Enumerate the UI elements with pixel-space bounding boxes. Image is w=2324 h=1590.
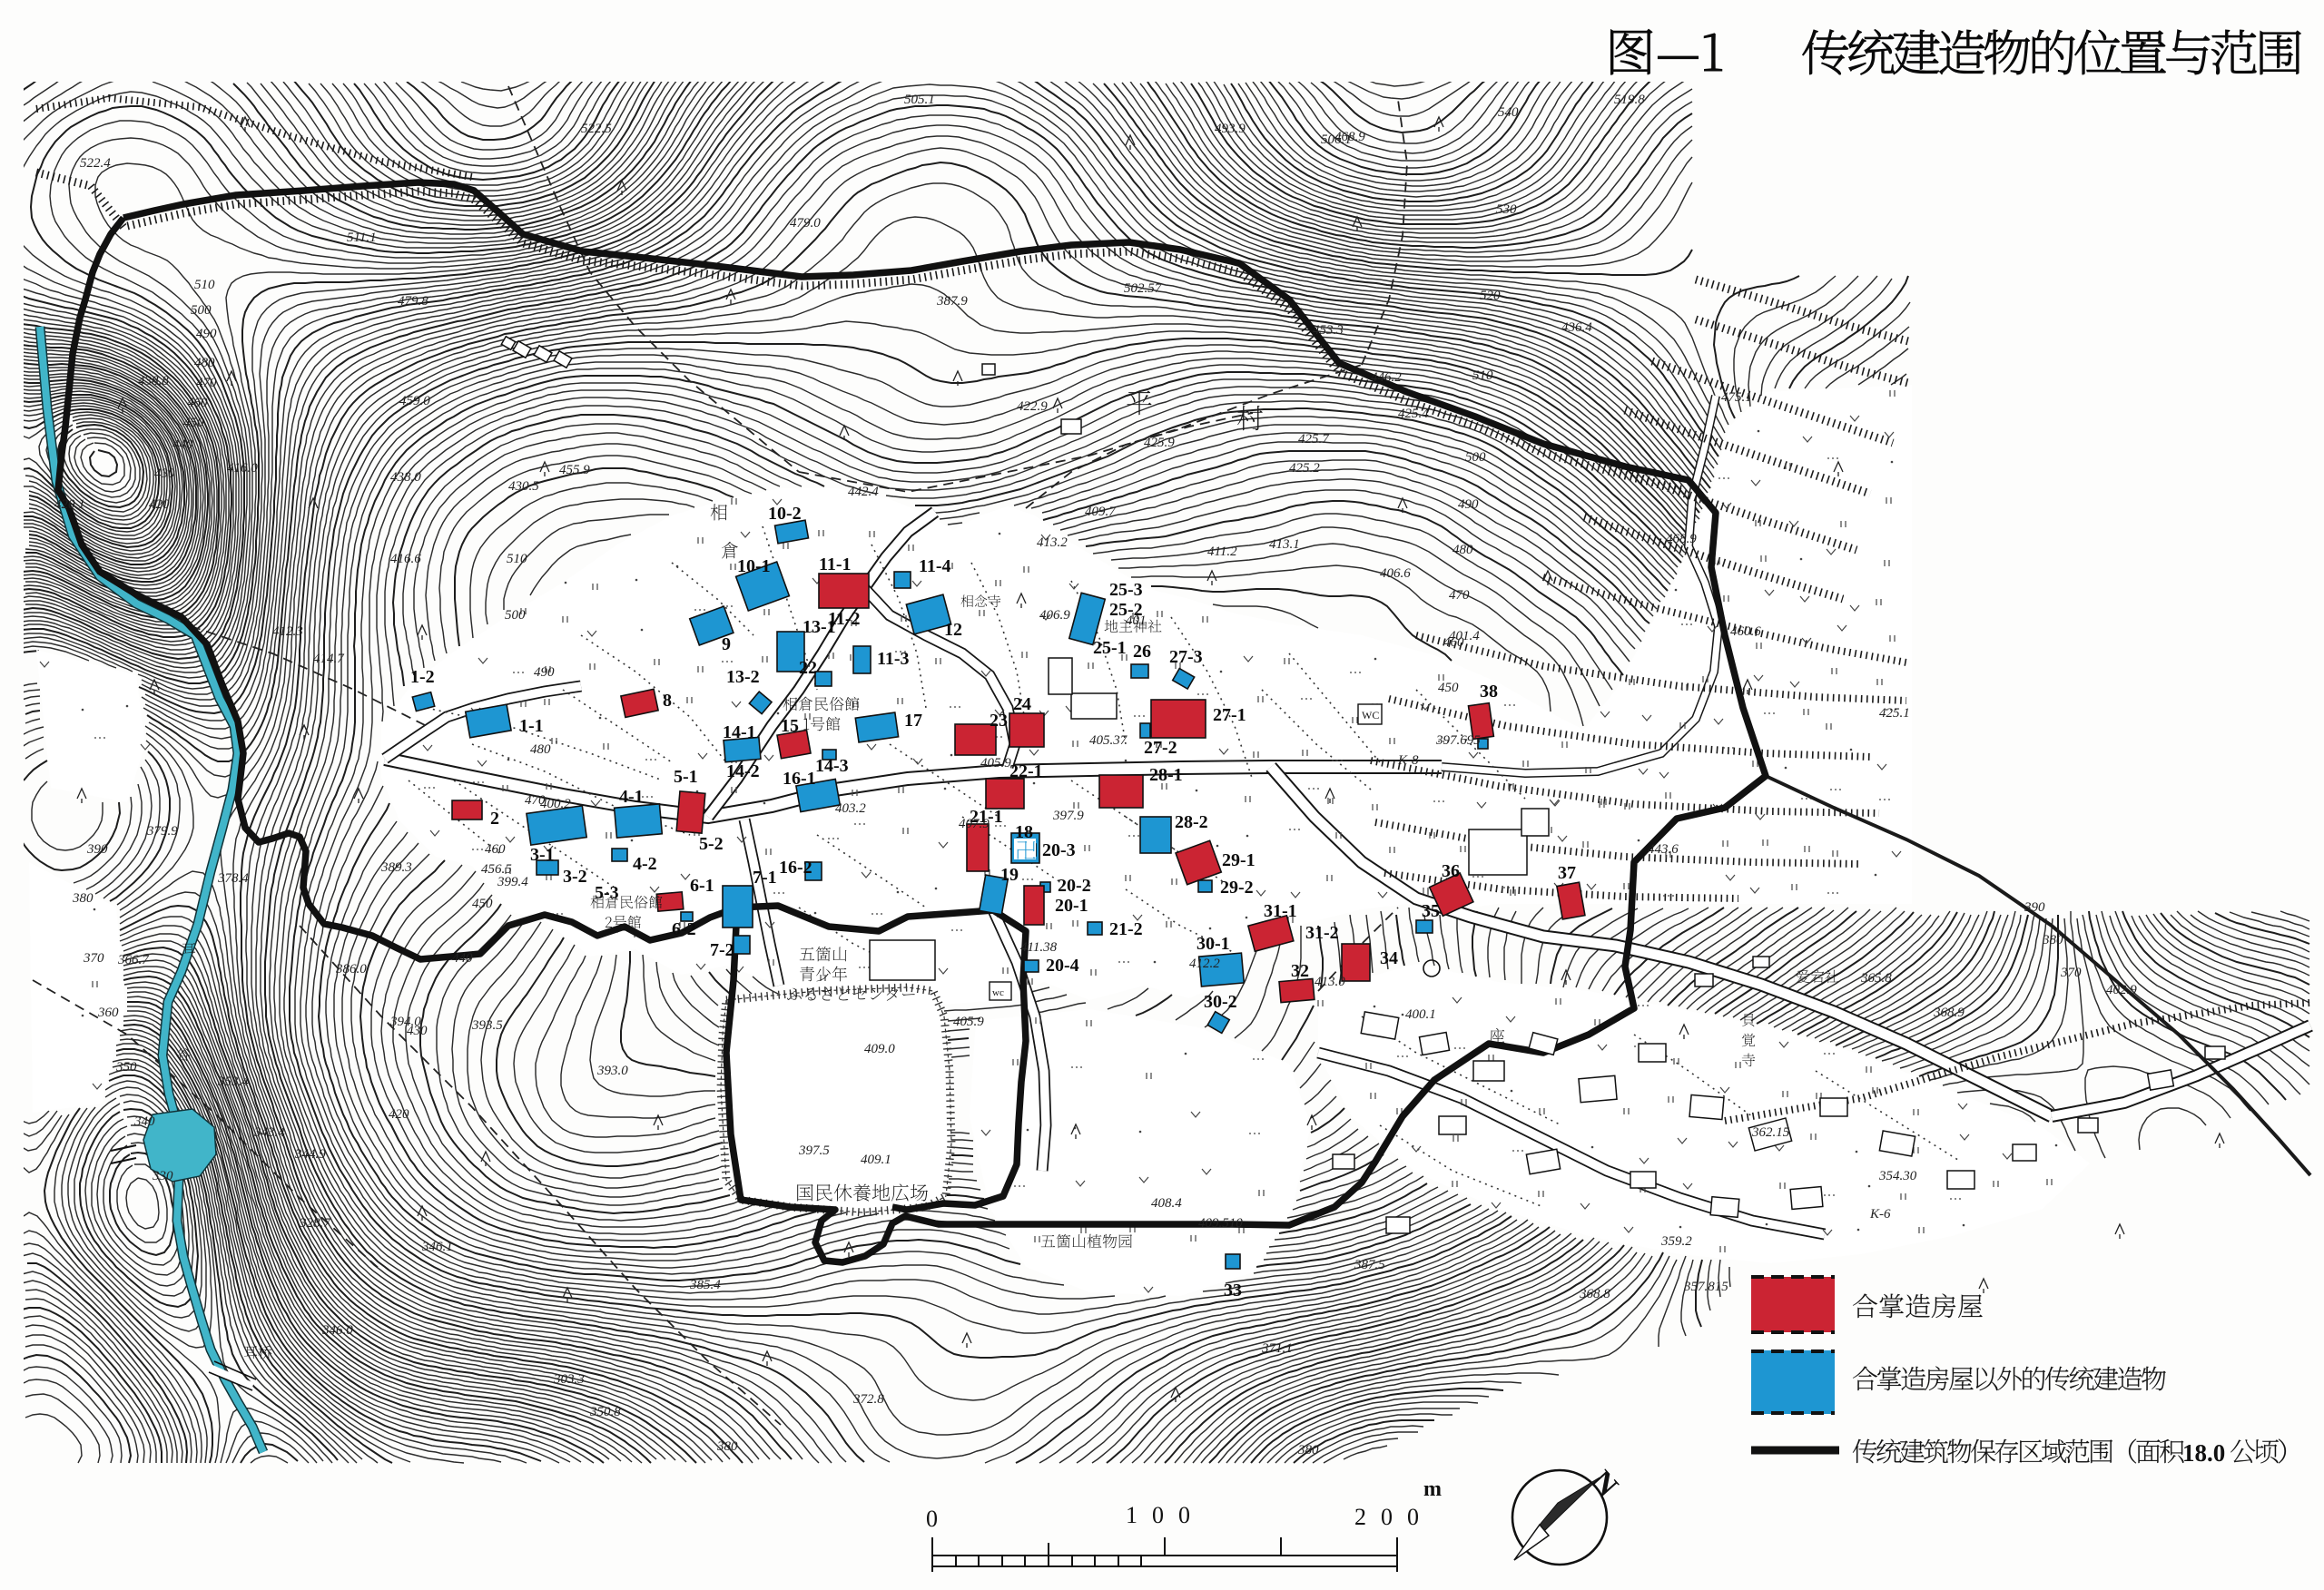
svg-text:389.3: 389.3 bbox=[380, 860, 412, 875]
svg-text:442.4: 442.4 bbox=[848, 485, 879, 499]
svg-text:18.0: 18.0 bbox=[2182, 1439, 2225, 1467]
svg-text:397.9: 397.9 bbox=[1052, 809, 1084, 823]
svg-text:522.4: 522.4 bbox=[80, 156, 111, 171]
svg-text:19: 19 bbox=[1000, 865, 1019, 885]
svg-text:31-2: 31-2 bbox=[1305, 923, 1339, 943]
svg-text:407.9: 407.9 bbox=[959, 817, 990, 831]
svg-text:403.2: 403.2 bbox=[835, 801, 866, 816]
svg-text:390: 390 bbox=[86, 842, 108, 857]
svg-text:422.9: 422.9 bbox=[1017, 399, 1048, 414]
svg-text:13-2: 13-2 bbox=[726, 667, 760, 687]
svg-text:519.8: 519.8 bbox=[1614, 93, 1645, 107]
svg-text:406.9: 406.9 bbox=[1039, 608, 1070, 623]
svg-text:7-2: 7-2 bbox=[710, 940, 734, 960]
svg-text:m: m bbox=[1423, 1477, 1442, 1501]
svg-text:380: 380 bbox=[1297, 1443, 1319, 1457]
svg-text:522.5: 522.5 bbox=[581, 122, 612, 136]
svg-text:12: 12 bbox=[944, 620, 962, 640]
svg-text:493.9: 493.9 bbox=[1215, 122, 1246, 136]
svg-text:397.5: 397.5 bbox=[798, 1143, 830, 1158]
svg-text:450: 450 bbox=[1438, 681, 1459, 695]
svg-text:393.5: 393.5 bbox=[471, 1018, 503, 1033]
svg-text:470: 470 bbox=[196, 376, 217, 390]
svg-text:6-2: 6-2 bbox=[672, 919, 696, 939]
svg-text:354.30: 354.30 bbox=[1878, 1169, 1917, 1183]
svg-text:35: 35 bbox=[1422, 901, 1440, 921]
svg-text:436.4: 436.4 bbox=[1561, 320, 1592, 335]
svg-text:413.0: 413.0 bbox=[1315, 975, 1345, 989]
svg-text:520: 520 bbox=[1480, 289, 1501, 303]
svg-text:357.815: 357.815 bbox=[1683, 1280, 1728, 1294]
svg-text:11-4: 11-4 bbox=[919, 556, 951, 576]
svg-text:438.0: 438.0 bbox=[390, 470, 421, 485]
svg-text:420: 420 bbox=[389, 1107, 409, 1122]
svg-text:500: 500 bbox=[505, 608, 526, 623]
svg-text:20-2: 20-2 bbox=[1058, 876, 1091, 896]
svg-text:22: 22 bbox=[799, 658, 817, 678]
svg-text:400.1: 400.1 bbox=[1405, 1007, 1436, 1022]
svg-text:540: 540 bbox=[1498, 105, 1519, 120]
svg-text:368.8: 368.8 bbox=[1579, 1287, 1610, 1301]
svg-text:344.9: 344.9 bbox=[294, 1147, 326, 1162]
svg-text:350.8: 350.8 bbox=[589, 1405, 621, 1419]
svg-text:455.9: 455.9 bbox=[559, 463, 590, 477]
svg-text:409.7: 409.7 bbox=[1085, 505, 1117, 519]
svg-text:1-1: 1-1 bbox=[519, 716, 544, 736]
svg-text:11-1: 11-1 bbox=[819, 555, 852, 574]
svg-text:408.4: 408.4 bbox=[1151, 1196, 1182, 1211]
svg-text:30-1: 30-1 bbox=[1196, 934, 1230, 954]
svg-text:346.1: 346.1 bbox=[421, 1240, 453, 1254]
svg-text:31-1: 31-1 bbox=[1264, 901, 1297, 921]
svg-text:390: 390 bbox=[2024, 900, 2045, 915]
svg-text:446.2: 446.2 bbox=[1371, 370, 1402, 385]
svg-text:26: 26 bbox=[1133, 642, 1151, 662]
svg-text:0: 0 bbox=[926, 1506, 938, 1532]
svg-text:25-1: 25-1 bbox=[1093, 638, 1127, 658]
svg-text:360: 360 bbox=[97, 1006, 119, 1020]
svg-text:453.3: 453.3 bbox=[1313, 323, 1344, 338]
svg-text:17: 17 bbox=[904, 711, 922, 731]
svg-text:36: 36 bbox=[1442, 861, 1460, 881]
svg-text:510: 510 bbox=[1472, 368, 1493, 383]
svg-text:438.8: 438.8 bbox=[138, 374, 169, 388]
svg-text:328.7: 328.7 bbox=[299, 1216, 331, 1231]
svg-text:430: 430 bbox=[407, 1024, 428, 1038]
svg-text:409.510: 409.510 bbox=[1198, 1216, 1243, 1231]
svg-text:480: 480 bbox=[1452, 543, 1473, 557]
svg-text:413.2: 413.2 bbox=[1037, 535, 1068, 550]
svg-text:502.57: 502.57 bbox=[1124, 281, 1163, 296]
svg-text:413.1: 413.1 bbox=[1269, 537, 1300, 552]
svg-text:33: 33 bbox=[1224, 1281, 1242, 1300]
svg-text:1-2: 1-2 bbox=[410, 667, 435, 687]
svg-text:27-2: 27-2 bbox=[1144, 738, 1177, 758]
svg-text:330: 330 bbox=[152, 1169, 173, 1183]
svg-text:3-2: 3-2 bbox=[563, 867, 587, 887]
svg-text:K-6: K-6 bbox=[1869, 1207, 1891, 1222]
svg-text:22-1: 22-1 bbox=[1009, 761, 1043, 781]
svg-text:416.6: 416.6 bbox=[390, 552, 421, 566]
svg-text:430: 430 bbox=[154, 466, 175, 481]
svg-text:468.9: 468.9 bbox=[1666, 532, 1697, 546]
svg-text:425.9: 425.9 bbox=[1144, 436, 1175, 450]
svg-text:30-2: 30-2 bbox=[1204, 992, 1237, 1012]
svg-text:387.5: 387.5 bbox=[1354, 1258, 1385, 1272]
svg-text:505.1: 505.1 bbox=[904, 93, 935, 107]
svg-text:405.9: 405.9 bbox=[953, 1015, 984, 1029]
svg-text:490: 490 bbox=[1458, 497, 1479, 512]
svg-text:20-3: 20-3 bbox=[1042, 840, 1076, 860]
svg-text:7-1: 7-1 bbox=[753, 868, 777, 888]
svg-text:14-2: 14-2 bbox=[726, 761, 760, 781]
svg-text:28-2: 28-2 bbox=[1175, 812, 1208, 832]
svg-text:480: 480 bbox=[194, 356, 215, 370]
svg-text:353.4: 353.4 bbox=[217, 1075, 249, 1089]
svg-text:13-1: 13-1 bbox=[803, 617, 836, 637]
svg-text:380: 380 bbox=[2042, 933, 2063, 947]
svg-text:500: 500 bbox=[191, 303, 212, 318]
svg-text:440: 440 bbox=[452, 951, 473, 966]
svg-text:16-1: 16-1 bbox=[783, 769, 816, 789]
svg-text:460: 460 bbox=[485, 842, 506, 857]
svg-text:490: 490 bbox=[534, 665, 555, 680]
svg-text:456.5: 456.5 bbox=[481, 862, 512, 877]
svg-text:32: 32 bbox=[1291, 961, 1309, 981]
svg-text:399.4: 399.4 bbox=[497, 875, 528, 889]
svg-text:21-2: 21-2 bbox=[1109, 919, 1143, 939]
svg-text:10-2: 10-2 bbox=[768, 504, 802, 524]
svg-text:14-1: 14-1 bbox=[723, 722, 756, 742]
svg-text:475.1: 475.1 bbox=[1721, 390, 1752, 405]
svg-text:468.9: 468.9 bbox=[1334, 130, 1365, 144]
svg-text:15: 15 bbox=[781, 716, 799, 736]
svg-text:24: 24 bbox=[1013, 694, 1031, 714]
svg-text:450: 450 bbox=[183, 416, 204, 430]
svg-text:366.7: 366.7 bbox=[117, 953, 150, 967]
svg-text:479.8: 479.8 bbox=[398, 294, 428, 309]
svg-text:27-1: 27-1 bbox=[1213, 705, 1246, 725]
svg-text:350: 350 bbox=[115, 1060, 137, 1075]
svg-text:20-1: 20-1 bbox=[1055, 896, 1088, 916]
svg-text:29-2: 29-2 bbox=[1220, 878, 1254, 898]
svg-text:K-8: K-8 bbox=[1397, 753, 1419, 768]
svg-text:480: 480 bbox=[530, 742, 551, 757]
svg-text:370: 370 bbox=[83, 951, 104, 966]
svg-text:8: 8 bbox=[663, 691, 672, 711]
svg-text:387.9: 387.9 bbox=[936, 294, 968, 309]
svg-text:378.4: 378.4 bbox=[217, 871, 249, 886]
svg-text:470: 470 bbox=[525, 793, 546, 808]
svg-text:460: 460 bbox=[187, 396, 208, 410]
svg-text:416.0: 416.0 bbox=[227, 461, 258, 476]
svg-text:406.6: 406.6 bbox=[1380, 566, 1411, 581]
svg-text:386.0: 386.0 bbox=[335, 962, 367, 977]
svg-text:510: 510 bbox=[507, 552, 527, 566]
svg-text:405.9: 405.9 bbox=[980, 756, 1011, 770]
svg-text:411.2: 411.2 bbox=[1207, 545, 1237, 559]
svg-text:362.15: 362.15 bbox=[1751, 1125, 1790, 1140]
svg-text:402.9: 402.9 bbox=[2106, 983, 2137, 997]
svg-text:23: 23 bbox=[990, 711, 1008, 731]
svg-text:28-1: 28-1 bbox=[1149, 765, 1183, 785]
svg-text:100: 100 bbox=[1126, 1502, 1205, 1528]
svg-text:459.0: 459.0 bbox=[399, 394, 430, 408]
svg-text:443.6: 443.6 bbox=[1648, 842, 1679, 857]
svg-text:412.2: 412.2 bbox=[1189, 957, 1220, 971]
svg-text:450: 450 bbox=[472, 897, 493, 911]
svg-text:425.4: 425.4 bbox=[1398, 407, 1429, 421]
svg-text:405.37: 405.37 bbox=[1089, 733, 1128, 748]
svg-text:9: 9 bbox=[722, 634, 731, 654]
svg-text:370: 370 bbox=[2060, 966, 2082, 980]
svg-text:34: 34 bbox=[1380, 948, 1398, 968]
svg-text:490: 490 bbox=[196, 327, 217, 341]
svg-text:29-1: 29-1 bbox=[1222, 850, 1256, 870]
svg-text:409.0: 409.0 bbox=[864, 1042, 895, 1056]
svg-text:511.1: 511.1 bbox=[347, 231, 377, 245]
svg-text:37: 37 bbox=[1558, 863, 1576, 883]
svg-text:425.2: 425.2 bbox=[1289, 461, 1320, 476]
svg-text:25-3: 25-3 bbox=[1109, 580, 1143, 600]
svg-text:6-1: 6-1 bbox=[690, 876, 714, 896]
svg-text:397.695: 397.695 bbox=[1435, 733, 1481, 748]
svg-text:5-1: 5-1 bbox=[674, 767, 698, 787]
svg-text:10-1: 10-1 bbox=[737, 556, 771, 576]
svg-text:500: 500 bbox=[1465, 450, 1486, 465]
svg-text:530: 530 bbox=[1496, 202, 1517, 217]
svg-text:200: 200 bbox=[1354, 1504, 1433, 1530]
svg-text:303.3: 303.3 bbox=[553, 1372, 585, 1387]
svg-text:11-3: 11-3 bbox=[877, 649, 910, 669]
svg-text:379.9: 379.9 bbox=[146, 824, 178, 839]
svg-text:359.2: 359.2 bbox=[1660, 1234, 1692, 1249]
svg-text:340: 340 bbox=[133, 1114, 155, 1129]
svg-text:343.4: 343.4 bbox=[253, 1125, 285, 1140]
svg-text:38: 38 bbox=[1480, 682, 1498, 702]
svg-text:412.3: 412.3 bbox=[272, 624, 303, 639]
svg-text:385.4: 385.4 bbox=[689, 1278, 721, 1292]
svg-text:460: 460 bbox=[1443, 635, 1464, 650]
svg-text:479.0: 479.0 bbox=[790, 216, 821, 231]
svg-text:440: 440 bbox=[172, 437, 193, 452]
svg-text:372.8: 372.8 bbox=[852, 1392, 884, 1407]
svg-text:WC: WC bbox=[1362, 709, 1379, 721]
svg-text:393.0: 393.0 bbox=[596, 1064, 628, 1078]
svg-text:4-2: 4-2 bbox=[633, 854, 657, 874]
svg-text:5-2: 5-2 bbox=[699, 834, 724, 854]
svg-text:16-2: 16-2 bbox=[779, 858, 812, 878]
svg-text:510: 510 bbox=[194, 278, 215, 292]
svg-text:420: 420 bbox=[149, 497, 170, 512]
svg-text:409.1: 409.1 bbox=[861, 1153, 891, 1167]
svg-text:2: 2 bbox=[490, 809, 499, 829]
svg-text:425.7: 425.7 bbox=[1298, 432, 1330, 447]
svg-text:414.7: 414.7 bbox=[313, 652, 345, 666]
svg-text:380: 380 bbox=[716, 1439, 738, 1454]
svg-text:425.1: 425.1 bbox=[1879, 706, 1910, 721]
svg-text:380: 380 bbox=[72, 891, 94, 906]
svg-text:470: 470 bbox=[1449, 588, 1470, 603]
svg-text:460.6: 460.6 bbox=[1730, 624, 1761, 639]
svg-text:420.1: 420.1 bbox=[54, 497, 85, 512]
svg-text:411.38: 411.38 bbox=[1020, 940, 1058, 955]
svg-text:430.5: 430.5 bbox=[508, 479, 539, 494]
svg-text:4-1: 4-1 bbox=[619, 787, 644, 807]
svg-text:20-4: 20-4 bbox=[1046, 956, 1079, 976]
svg-text:14-3: 14-3 bbox=[815, 756, 849, 776]
svg-text:wc: wc bbox=[992, 987, 1004, 998]
svg-text:368.9: 368.9 bbox=[1933, 1006, 1965, 1020]
svg-text:346.0: 346.0 bbox=[321, 1323, 353, 1338]
svg-text:27-3: 27-3 bbox=[1169, 647, 1203, 667]
svg-text:365.8: 365.8 bbox=[1860, 971, 1892, 986]
svg-text:371.1: 371.1 bbox=[1261, 1341, 1293, 1356]
